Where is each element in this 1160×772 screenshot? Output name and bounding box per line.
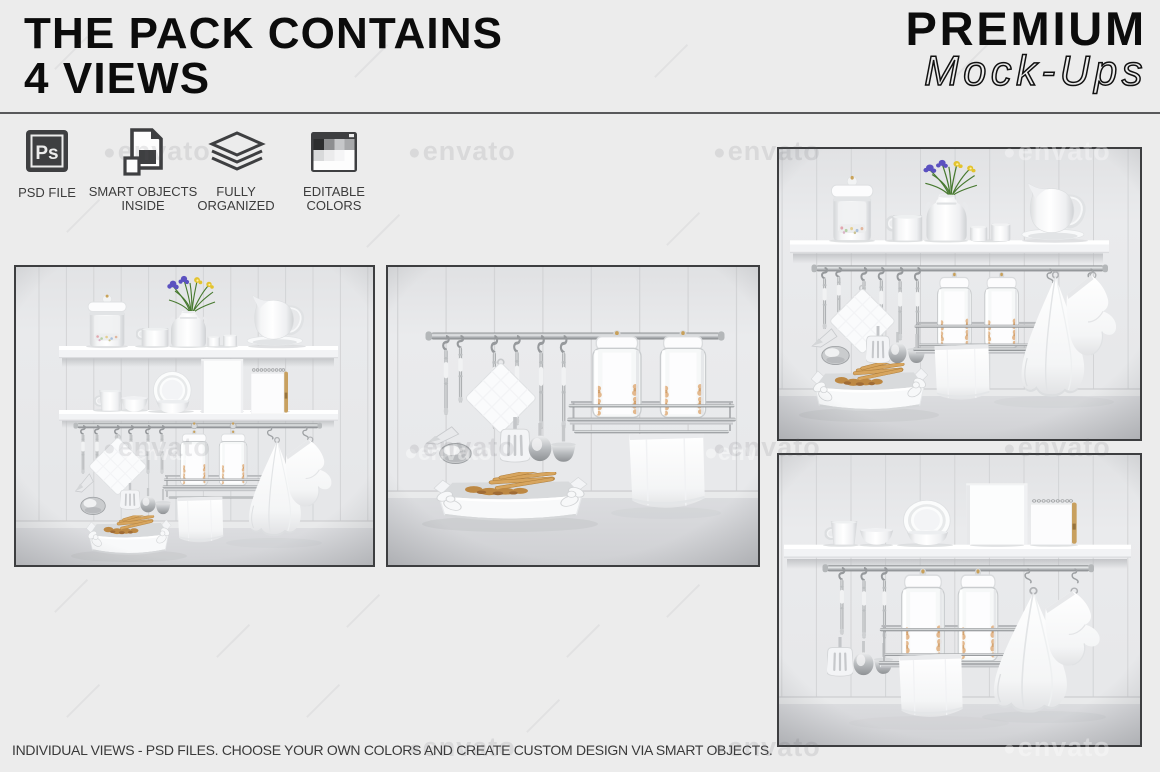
svg-text:Ps: Ps [35, 143, 58, 164]
